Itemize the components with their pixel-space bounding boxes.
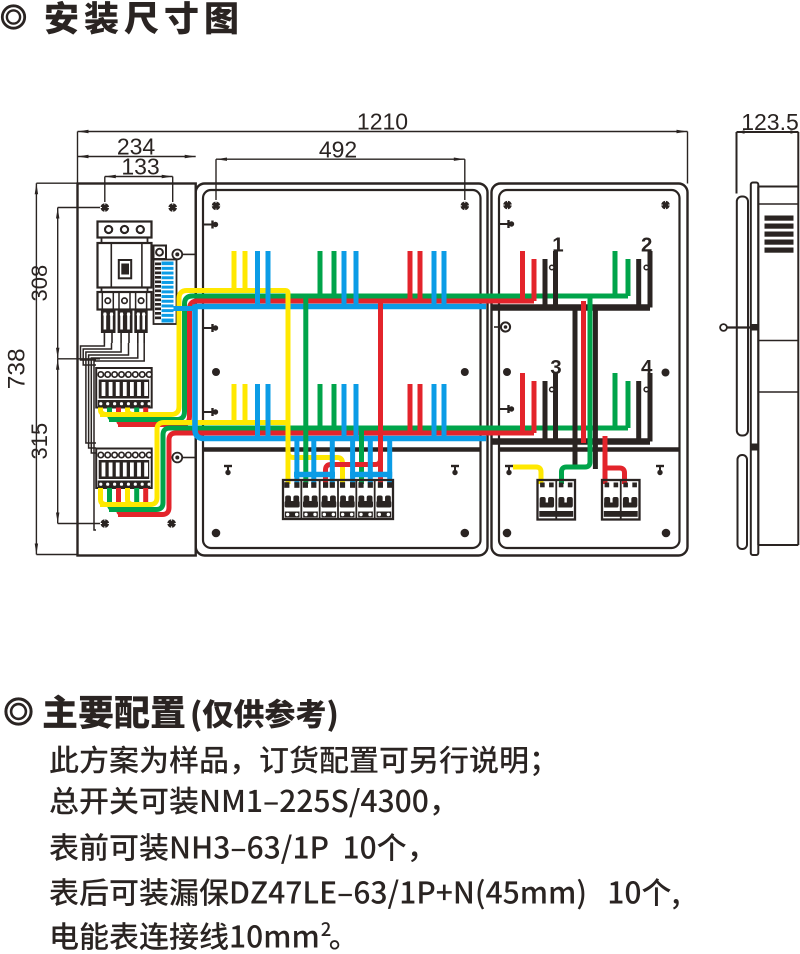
svg-text:738: 738 [4,348,31,389]
svg-text:1210: 1210 [357,109,408,135]
svg-text:3: 3 [550,356,561,379]
svg-text:4: 4 [641,356,653,379]
svg-text:133: 133 [121,154,159,180]
svg-text:492: 492 [319,136,357,162]
svg-text:315: 315 [27,423,52,460]
svg-text:1: 1 [552,234,563,257]
svg-text:2: 2 [641,234,652,257]
svg-text:308: 308 [27,265,52,302]
